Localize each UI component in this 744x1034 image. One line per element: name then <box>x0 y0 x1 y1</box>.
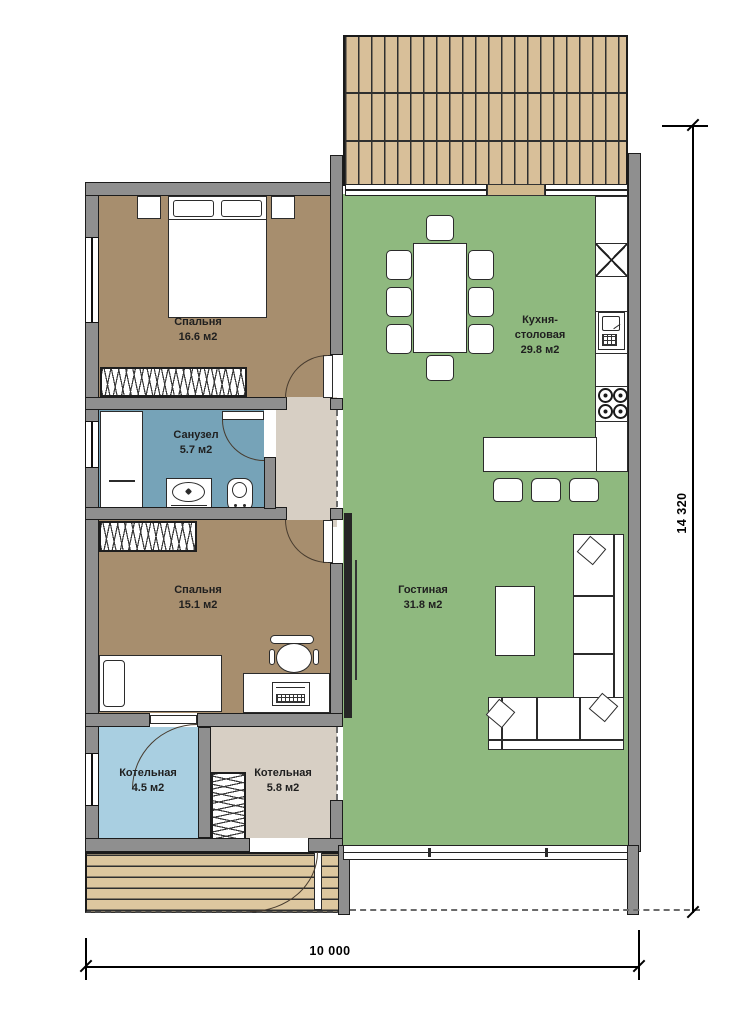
room-label-living: Гостиная 31.8 м2 <box>353 583 493 613</box>
dimension-extension <box>638 930 640 980</box>
dimension-line-horizontal <box>85 966 639 968</box>
tv-unit <box>344 513 352 718</box>
open-boundary <box>336 410 338 507</box>
wall-bathroom-right <box>264 457 276 509</box>
room-label-boiler-2: Котельная 5.8 м2 <box>213 766 353 796</box>
coffee-table <box>495 586 535 656</box>
dimension-line-vertical <box>692 125 694 913</box>
dining-chair <box>386 324 412 354</box>
post <box>627 845 639 915</box>
room-label-kitchen: Кухня- столовая 29.8 м2 <box>480 313 600 358</box>
bar-stool <box>531 478 561 502</box>
office-chair <box>276 643 312 673</box>
wardrobe <box>100 367 247 397</box>
dining-chair <box>386 250 412 280</box>
tv-screen <box>355 560 357 680</box>
single-bed <box>99 655 222 712</box>
bar-stool <box>569 478 599 502</box>
room-label-bedroom-1: Спальня 16.6 м2 <box>128 315 268 345</box>
bed-pillow <box>173 200 214 217</box>
glass-wall-bottom <box>343 845 628 860</box>
wardrobe <box>99 521 197 552</box>
mullion <box>545 848 548 857</box>
window <box>85 237 99 323</box>
room-label-bedroom-2: Спальня 15.1 м2 <box>128 583 268 613</box>
wall-mid <box>330 398 343 410</box>
dining-chair <box>386 287 412 317</box>
roof-overhang-line <box>350 909 700 911</box>
wall-bedroom2-boiler <box>197 713 343 727</box>
wall-bottom <box>85 838 250 852</box>
shower-cabinet <box>100 411 143 512</box>
wall-right <box>628 153 641 852</box>
wall-bedroom1-bathroom <box>85 397 287 410</box>
mullion <box>428 848 431 857</box>
dimension-label-horizontal: 10 000 <box>290 944 370 958</box>
nightstand <box>137 196 161 219</box>
fridge <box>595 243 628 277</box>
bar-stool <box>493 478 523 502</box>
terrace-door-sill <box>487 184 545 196</box>
office-chair-armrest <box>269 649 275 665</box>
glass-wall-top <box>345 184 487 196</box>
dining-chair <box>426 355 454 381</box>
dimension-extension <box>662 125 708 127</box>
wall-mid <box>330 155 343 355</box>
kitchen-island <box>483 437 597 472</box>
wall-mid <box>330 508 343 520</box>
nightstand <box>271 196 295 219</box>
dimension-label-vertical: 14 320 <box>675 483 689 543</box>
room-label-bathroom: Санузел 5.7 м2 <box>126 428 266 458</box>
door-leaf-bathroom <box>222 411 264 420</box>
window <box>85 421 99 468</box>
stove <box>595 385 628 420</box>
dimension-extension <box>85 938 87 980</box>
terrace-deck-top <box>343 35 628 186</box>
dining-table <box>413 243 467 353</box>
wall-bedroom2-boiler <box>85 713 150 727</box>
laptop <box>272 682 310 706</box>
wall-top <box>85 182 343 196</box>
glass-wall-top <box>545 184 628 196</box>
floor-plan: 14 320 10 000 Спальня 16.6 м2 Кухня- сто… <box>0 0 744 1034</box>
wall-mid <box>330 563 343 727</box>
wall-bathroom-bedroom2 <box>85 507 287 520</box>
dining-chair <box>468 250 494 280</box>
door-leaf-boiler1 <box>150 715 197 724</box>
kitchen-sink <box>598 312 625 350</box>
office-chair-armrest <box>313 649 319 665</box>
dining-chair <box>426 215 454 241</box>
room-label-boiler-1: Котельная 4.5 м2 <box>78 766 218 796</box>
bed-pillow <box>221 200 262 217</box>
